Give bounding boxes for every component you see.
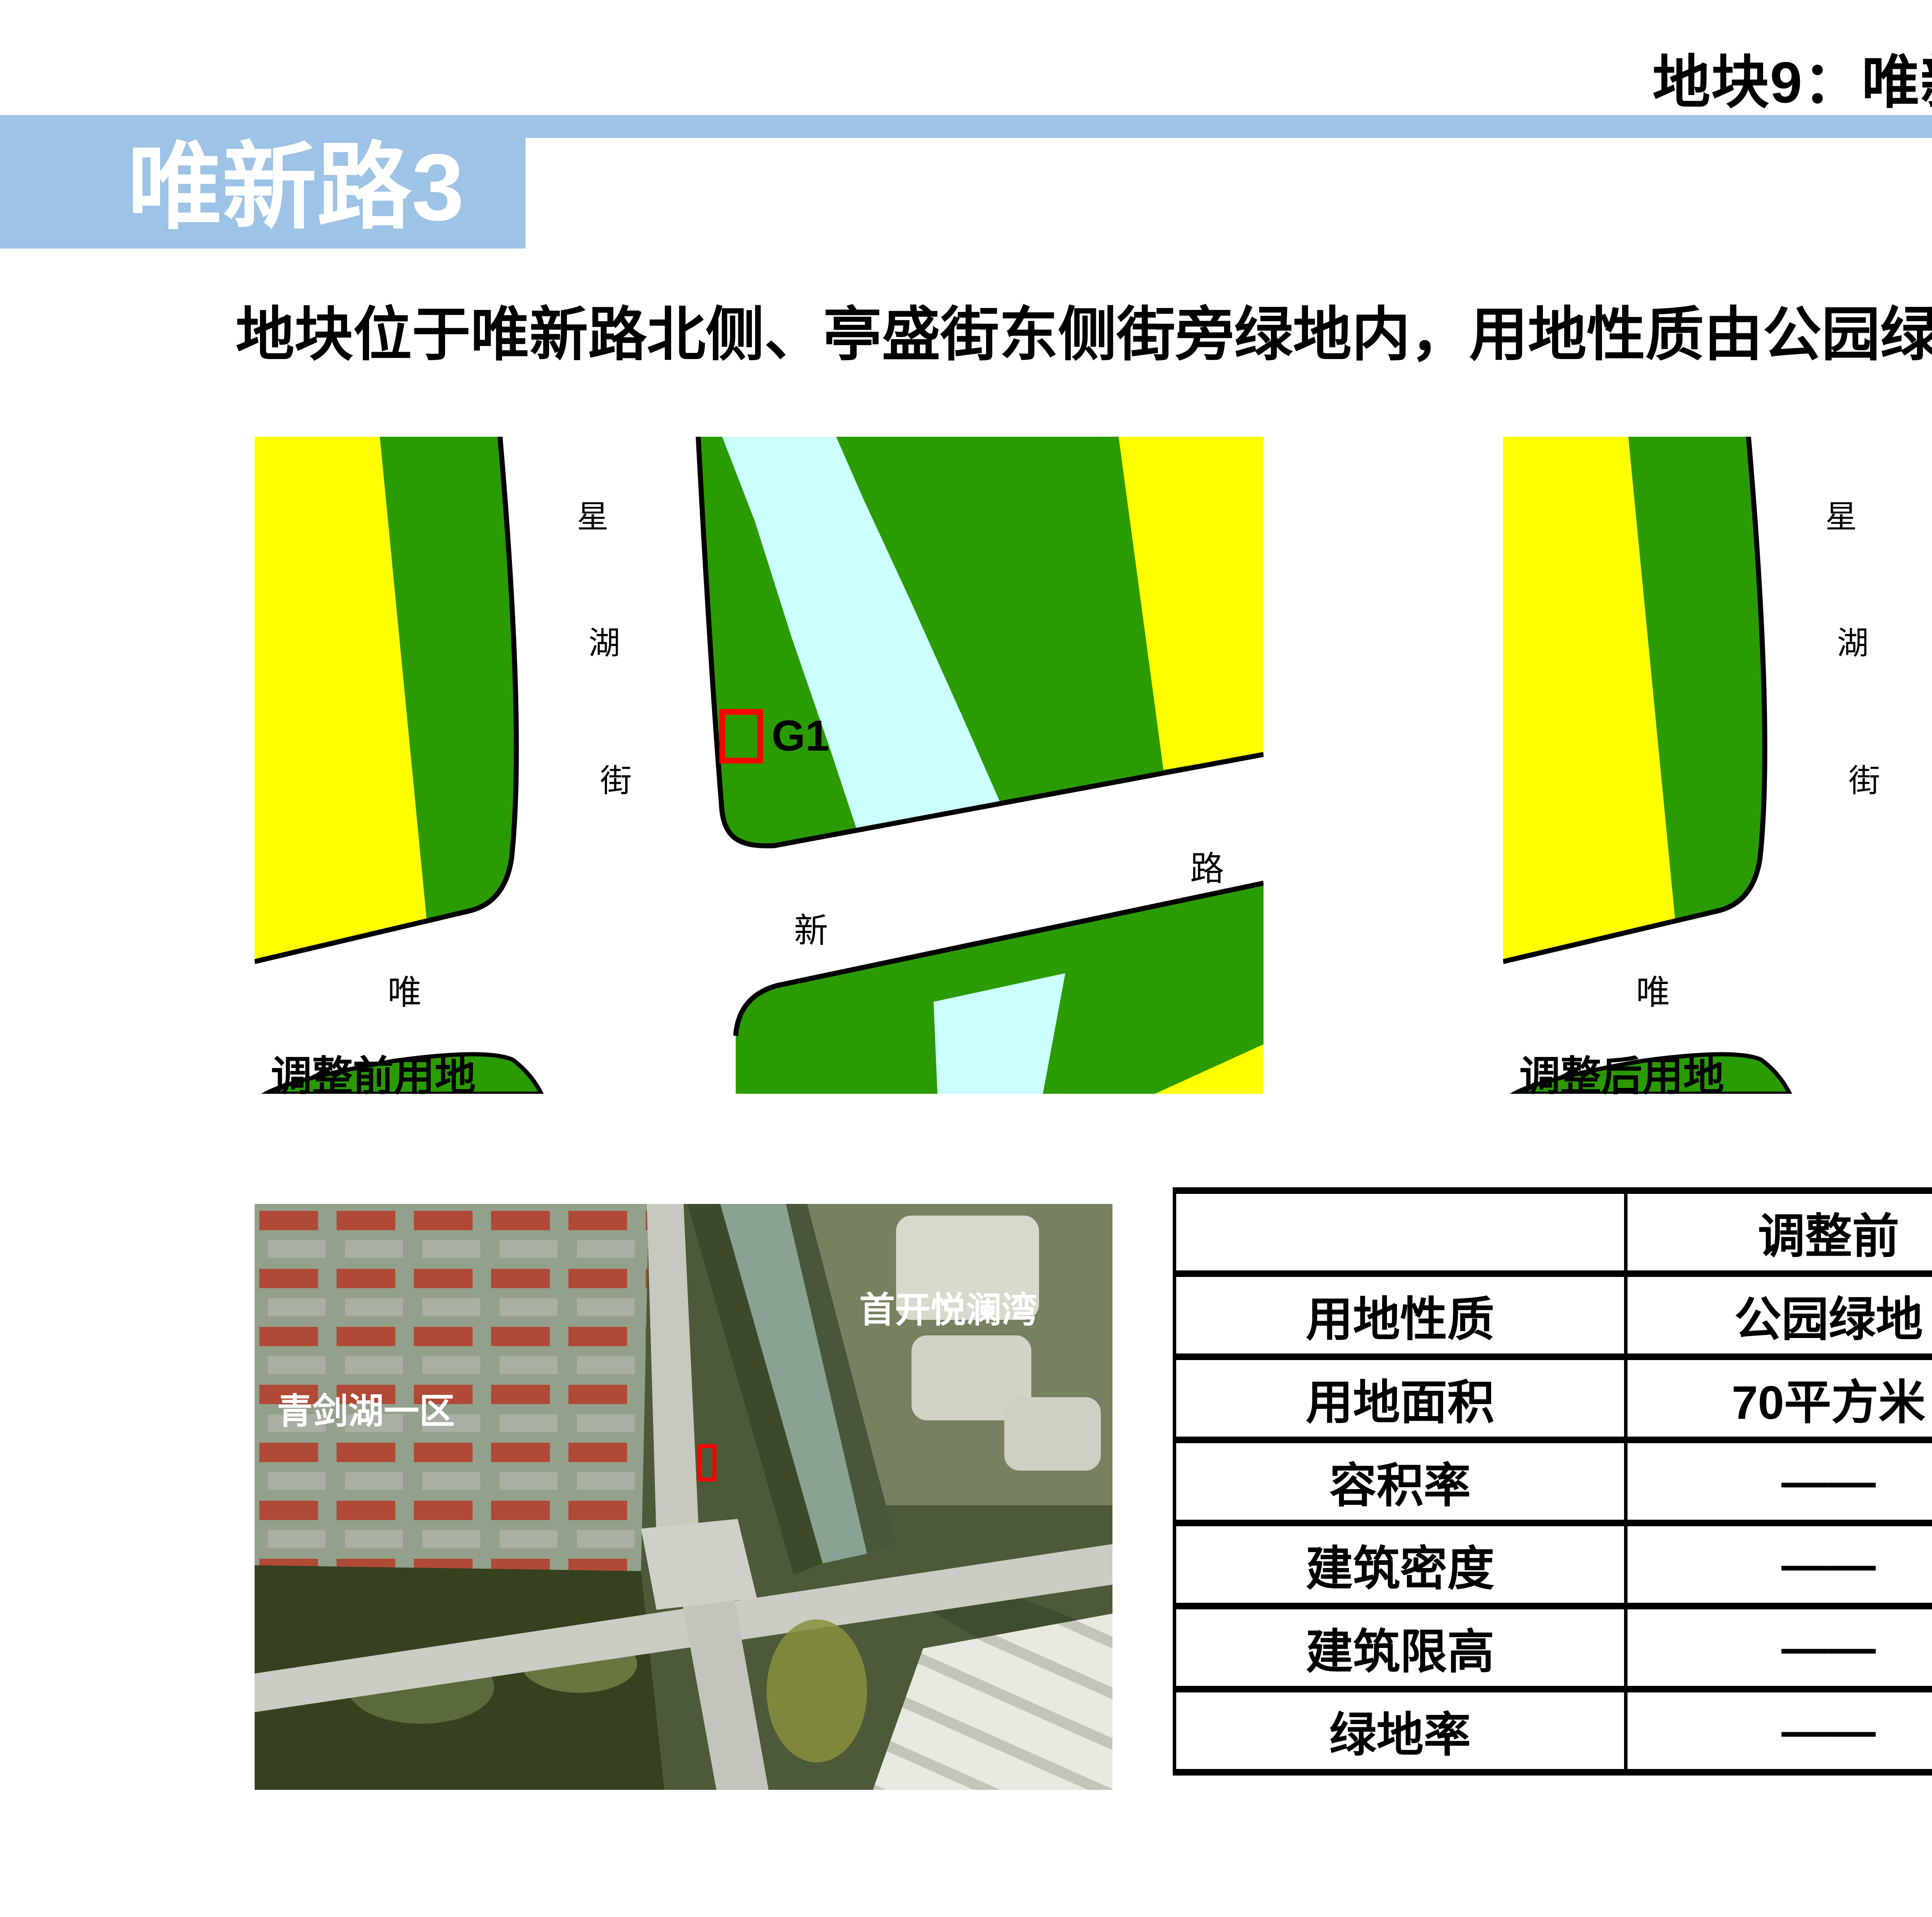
table-row: 建筑密度 —— —— — [1175, 1523, 1932, 1606]
row-label: 建筑限高 — [1175, 1606, 1626, 1689]
road-label-lu: 路 — [1190, 850, 1224, 888]
landuse-map-after-drawing: 星 湖 街 唯 新 路 U12 — [1503, 437, 1932, 1094]
section-title: 唯新路3 — [128, 140, 464, 235]
sat-label-qingjianhu: 青剑湖一区 — [277, 1382, 455, 1434]
page-title: 地块9：唯新路、城北路相关开闭所地块 — [1653, 36, 1932, 119]
table-row: 绿地率 —— —— — [1175, 1689, 1932, 1772]
road-label-wei: 唯 — [1636, 973, 1670, 1011]
value-before: —— — [1626, 1689, 1932, 1772]
street-label-hu: 湖 — [1837, 626, 1869, 661]
slide: 地块9：唯新路、城北路相关开闭所地块 唯新路3 地块位于唯新路北侧、亭盛街东侧街… — [0, 0, 1932, 1917]
sat-plot-marker — [697, 1444, 716, 1481]
street-label-jie: 街 — [600, 763, 632, 798]
map-caption-before: 调整前用地 — [271, 1043, 476, 1102]
row-label: 用地面积 — [1175, 1357, 1626, 1440]
sat-intersection — [641, 1519, 757, 1610]
row-label: 建筑密度 — [1175, 1523, 1626, 1606]
landuse-map-before: 星 湖 街 唯 新 路 G1 调整前用地 — [255, 437, 1264, 1094]
value-before: —— — [1626, 1523, 1932, 1606]
table-row: 建筑限高 —— 12米 — [1175, 1606, 1932, 1689]
value-before: —— — [1626, 1606, 1932, 1689]
road-label-xin: 新 — [794, 911, 828, 950]
street-label-xing: 星 — [1825, 499, 1857, 535]
col-header-before: 调整前 — [1626, 1191, 1932, 1274]
description-text: 地块位于唯新路北侧、亭盛街东侧街旁绿地内，用地性质由公园绿地调整为供电用地。 — [236, 287, 1932, 372]
plot-marker-before-label: G1 — [772, 712, 829, 760]
table-row: 用地面积 70平方米 70平方米 — [1175, 1357, 1932, 1440]
value-before: 公园绿地 — [1626, 1274, 1932, 1357]
value-before: 70平方米 — [1626, 1357, 1932, 1440]
adjustment-table: 调整前 调整后 用地性质 公园绿地 供电用地 用地面积 70平方米 70平方米 … — [1173, 1187, 1932, 1776]
row-label: 绿地率 — [1175, 1689, 1626, 1772]
landuse-map-before-drawing: 星 湖 街 唯 新 路 G1 — [255, 437, 1264, 1094]
value-before: —— — [1626, 1440, 1932, 1523]
map-caption-after: 调整后用地 — [1519, 1043, 1724, 1102]
sat-buildings-right2 — [1004, 1397, 1101, 1471]
table-row: 容积率 —— 0.5 — [1175, 1440, 1932, 1523]
street-label-hu: 湖 — [588, 626, 620, 661]
street-label-jie: 街 — [1849, 763, 1880, 798]
landuse-map-after: 星 湖 街 唯 新 路 U12 调整后用地 — [1503, 437, 1932, 1094]
corner-cell — [1175, 1191, 1626, 1274]
row-label: 容积率 — [1175, 1440, 1626, 1523]
street-label-xing: 星 — [577, 499, 609, 535]
table-row: 用地性质 公园绿地 供电用地 — [1175, 1274, 1932, 1357]
satellite-image: 首开悦澜湾 青剑湖一区 — [255, 1204, 1112, 1790]
row-label: 用地性质 — [1175, 1274, 1626, 1357]
sat-autumn-trees — [767, 1619, 867, 1762]
sat-label-shoukai: 首开悦澜湾 — [859, 1281, 1037, 1333]
road-label-wei: 唯 — [388, 973, 422, 1011]
table-header-row: 调整前 调整后 — [1175, 1191, 1932, 1274]
